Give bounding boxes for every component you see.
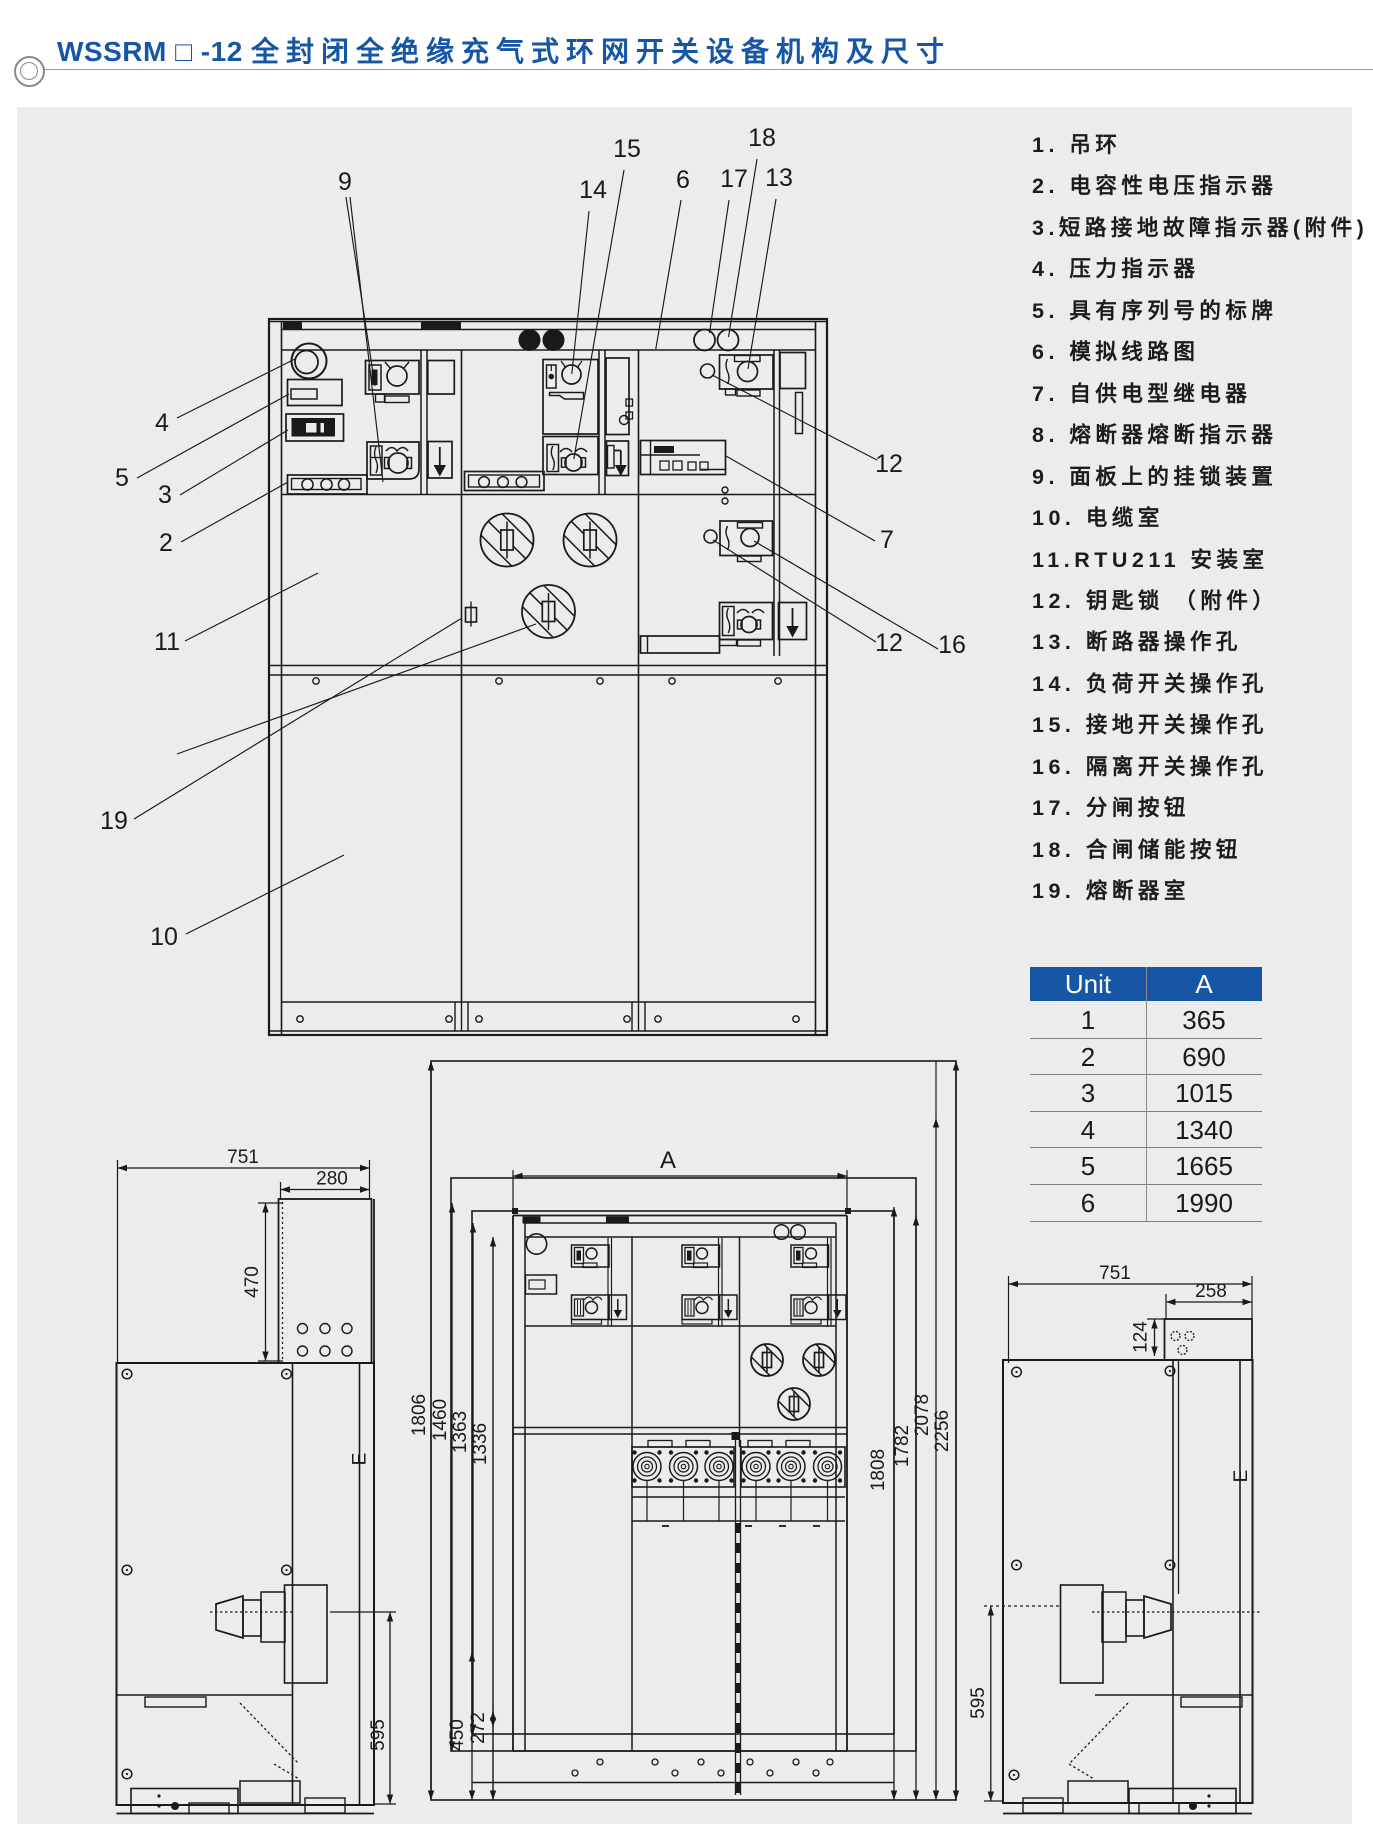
svg-text:595: 595 bbox=[368, 1719, 389, 1751]
svg-text:280: 280 bbox=[316, 1169, 348, 1190]
svg-text:E: E bbox=[350, 1453, 371, 1466]
svg-text:595: 595 bbox=[968, 1687, 989, 1719]
svg-text:10: 10 bbox=[150, 923, 178, 951]
svg-text:258: 258 bbox=[1195, 1281, 1227, 1302]
svg-text:2256: 2256 bbox=[932, 1410, 953, 1452]
svg-text:12: 12 bbox=[875, 450, 903, 478]
svg-text:5: 5 bbox=[115, 464, 129, 492]
svg-text:13: 13 bbox=[765, 164, 793, 192]
svg-text:12: 12 bbox=[875, 629, 903, 657]
svg-text:E: E bbox=[1231, 1470, 1252, 1483]
svg-text:124: 124 bbox=[1131, 1321, 1152, 1353]
svg-text:470: 470 bbox=[242, 1266, 263, 1298]
svg-text:4: 4 bbox=[155, 409, 169, 437]
svg-text:14: 14 bbox=[579, 176, 607, 204]
svg-text:17: 17 bbox=[720, 165, 748, 193]
svg-text:15: 15 bbox=[613, 135, 641, 163]
svg-text:1808: 1808 bbox=[868, 1449, 889, 1491]
svg-text:16: 16 bbox=[938, 631, 966, 659]
svg-text:450: 450 bbox=[447, 1719, 468, 1751]
svg-text:751: 751 bbox=[227, 1147, 259, 1168]
svg-text:11: 11 bbox=[154, 628, 180, 656]
svg-text:19: 19 bbox=[100, 807, 128, 835]
svg-text:1806: 1806 bbox=[409, 1394, 430, 1436]
svg-text:1782: 1782 bbox=[892, 1425, 913, 1467]
svg-text:2078: 2078 bbox=[912, 1394, 933, 1436]
svg-text:18: 18 bbox=[748, 124, 776, 152]
svg-text:3: 3 bbox=[158, 481, 172, 509]
svg-text:1336: 1336 bbox=[470, 1423, 491, 1465]
svg-text:751: 751 bbox=[1099, 1263, 1131, 1284]
svg-text:9: 9 bbox=[338, 168, 352, 196]
svg-text:1460: 1460 bbox=[430, 1399, 451, 1441]
svg-text:A: A bbox=[660, 1147, 676, 1174]
svg-text:272: 272 bbox=[468, 1712, 489, 1744]
svg-text:1363: 1363 bbox=[450, 1411, 471, 1453]
svg-text:2: 2 bbox=[159, 529, 173, 557]
svg-text:6: 6 bbox=[676, 166, 690, 194]
svg-text:7: 7 bbox=[880, 526, 894, 554]
